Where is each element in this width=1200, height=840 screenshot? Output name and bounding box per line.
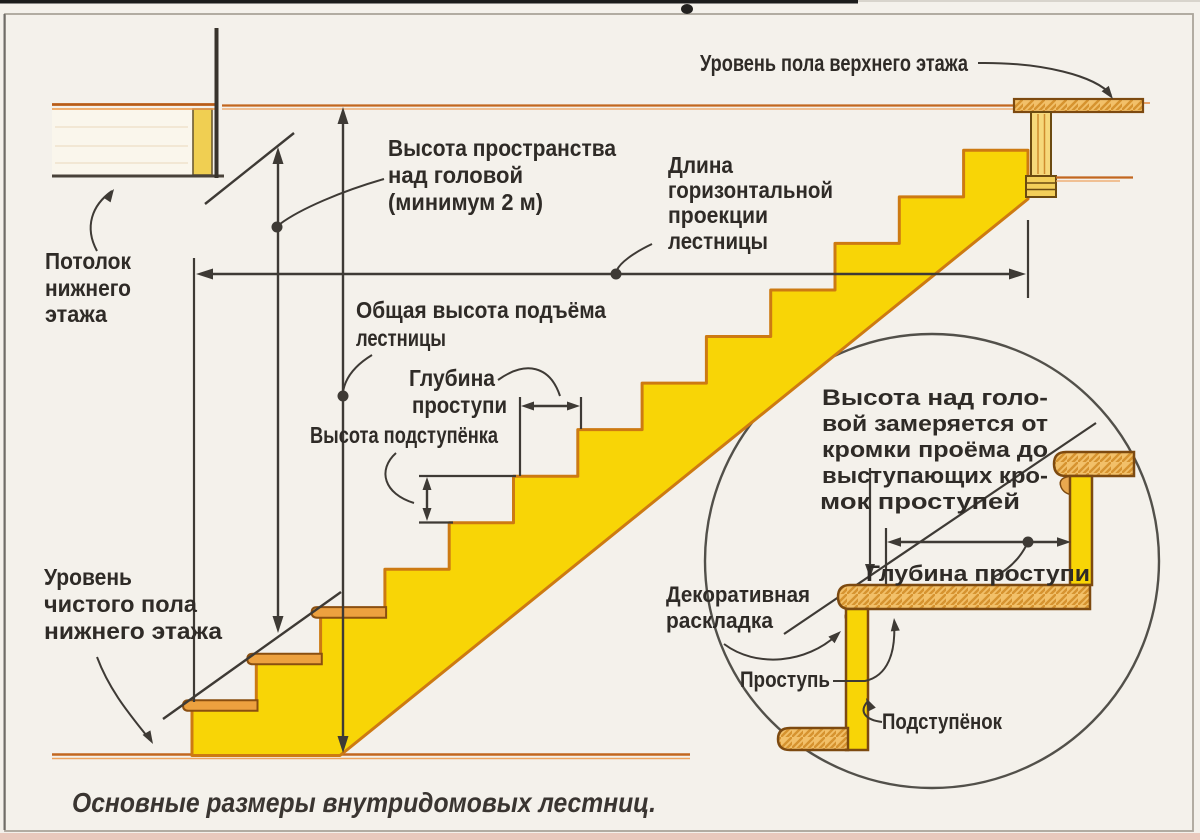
inset-label-riser: Подступёнок xyxy=(882,709,1003,734)
label-projection-3: проекции xyxy=(668,202,768,228)
newel-post xyxy=(1031,112,1051,176)
scan-edge-bottom xyxy=(0,833,1200,840)
inset-depth-dot xyxy=(1023,537,1034,548)
scan-edge-top xyxy=(0,0,858,4)
diagram-caption: Основные размеры внутридомовых лестниц. xyxy=(72,787,656,818)
tread-board-2 xyxy=(247,654,321,665)
total-rise-leader-dot xyxy=(338,391,349,402)
label-lower-floor-1: Уровень xyxy=(44,564,132,590)
trimmer-joist xyxy=(193,109,212,175)
label-tread-depth-1: Глубина xyxy=(409,365,495,391)
inset-label-trim-2: раскладка xyxy=(666,608,774,633)
tread-board-3 xyxy=(312,607,387,618)
inset-note-5: мок проступей xyxy=(820,489,1020,514)
label-lower-floor-3: нижнего этажа xyxy=(44,618,222,644)
inset-note-2: вой замеряется от xyxy=(822,411,1048,436)
label-lower-ceiling-1: Потолок xyxy=(45,248,131,274)
inset-label-trim-1: Декоративная xyxy=(666,582,810,607)
scan-speck xyxy=(681,4,693,14)
inset-note-4: выступающих кро- xyxy=(822,463,1048,488)
label-lower-ceiling-2: нижнего xyxy=(45,275,131,301)
inset-bottom-tread xyxy=(778,728,848,750)
label-lower-floor-2: чистого пола xyxy=(44,591,197,617)
label-projection-4: лестницы xyxy=(668,228,768,254)
inset-lower-riser xyxy=(846,609,868,750)
inset-label-tread-depth: Глубина проступи xyxy=(866,561,1090,586)
newel-base-block xyxy=(1026,176,1056,197)
label-total-rise-1: Общая высота подъёма xyxy=(356,297,606,323)
staircase-dimensions-diagram: Уровень пола верхнего этажа Высота прост… xyxy=(0,0,1200,840)
label-headroom-3: (минимум 2 м) xyxy=(388,189,543,215)
label-projection-1: Длина xyxy=(668,152,733,178)
inset-label-tread: Проступь xyxy=(740,667,830,692)
label-projection-2: горизонтальной xyxy=(668,177,833,203)
inset-note-3: кромки проёма до xyxy=(822,437,1048,462)
inset-upper-tread xyxy=(1054,452,1134,476)
label-total-rise-2: лестницы xyxy=(356,325,446,351)
inset-middle-tread xyxy=(838,585,1090,609)
label-riser-height: Высота подступёнка xyxy=(310,422,498,448)
scan-edge-top-light xyxy=(858,0,1200,2)
projection-leader-dot xyxy=(611,269,622,280)
upper-floor-plank xyxy=(1014,99,1143,112)
label-upper-floor-level: Уровень пола верхнего этажа xyxy=(700,50,968,76)
inset-note-1: Высота над голо- xyxy=(822,385,1048,410)
label-lower-ceiling-3: этажа xyxy=(45,301,107,327)
label-tread-depth-2: проступи xyxy=(412,392,507,418)
label-headroom-1: Высота пространства xyxy=(388,135,616,161)
label-headroom-2: над головой xyxy=(388,162,523,188)
floor-band-body xyxy=(52,109,213,175)
scanned-diagram-page: Уровень пола верхнего этажа Высота прост… xyxy=(0,0,1200,840)
